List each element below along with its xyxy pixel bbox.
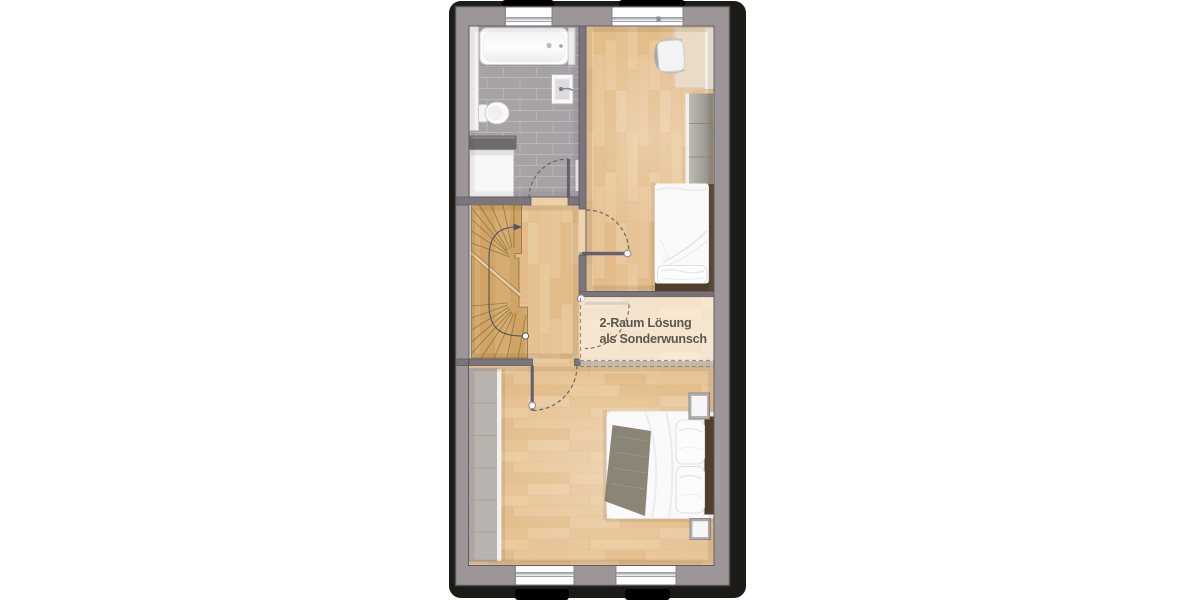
svg-text:2-Raum Lösung: 2-Raum Lösung	[600, 316, 692, 330]
svg-text:als Sonderwunsch: als Sonderwunsch	[600, 332, 707, 346]
